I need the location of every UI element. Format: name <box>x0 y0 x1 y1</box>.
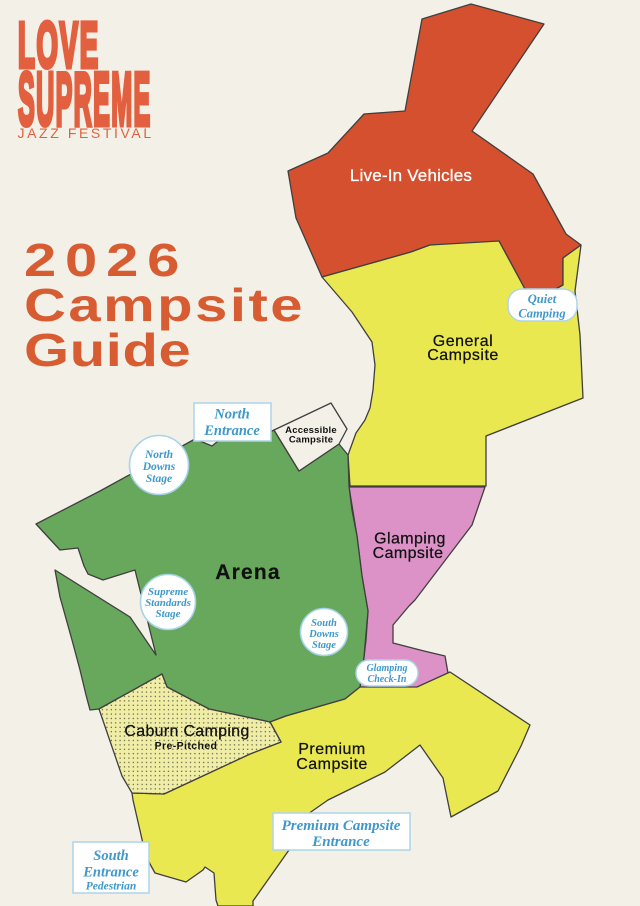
svg-text:Stage: Stage <box>155 608 180 620</box>
svg-text:North: North <box>144 449 173 461</box>
svg-text:Campsite: Campsite <box>296 756 368 773</box>
svg-text:Live-In Vehicles: Live-In Vehicles <box>350 166 472 185</box>
svg-text:Arena: Arena <box>215 561 281 584</box>
svg-text:Stage: Stage <box>146 473 172 485</box>
svg-text:North: North <box>213 407 249 423</box>
svg-text:Downs: Downs <box>142 461 176 473</box>
svg-text:South: South <box>311 618 337 629</box>
svg-text:Pre-Pitched: Pre-Pitched <box>155 740 218 752</box>
svg-text:Campsite: Campsite <box>373 545 444 562</box>
svg-text:Campsite: Campsite <box>427 347 499 364</box>
svg-text:Quiet: Quiet <box>528 292 557 306</box>
svg-text:Camping: Camping <box>518 307 565 321</box>
svg-text:Pedestrian: Pedestrian <box>86 881 136 893</box>
svg-text:Campsite: Campsite <box>289 435 333 446</box>
svg-text:Caburn Camping: Caburn Camping <box>124 723 249 740</box>
svg-text:Entrance: Entrance <box>311 834 370 850</box>
svg-text:South: South <box>93 848 128 864</box>
svg-text:Entrance: Entrance <box>203 423 260 439</box>
svg-text:Check-In: Check-In <box>368 674 407 685</box>
svg-text:Glamping: Glamping <box>366 663 407 674</box>
svg-text:Premium Campsite: Premium Campsite <box>282 818 401 834</box>
svg-text:Entrance: Entrance <box>82 865 139 881</box>
svg-text:Stage: Stage <box>312 640 336 651</box>
svg-text:Downs: Downs <box>308 629 339 640</box>
